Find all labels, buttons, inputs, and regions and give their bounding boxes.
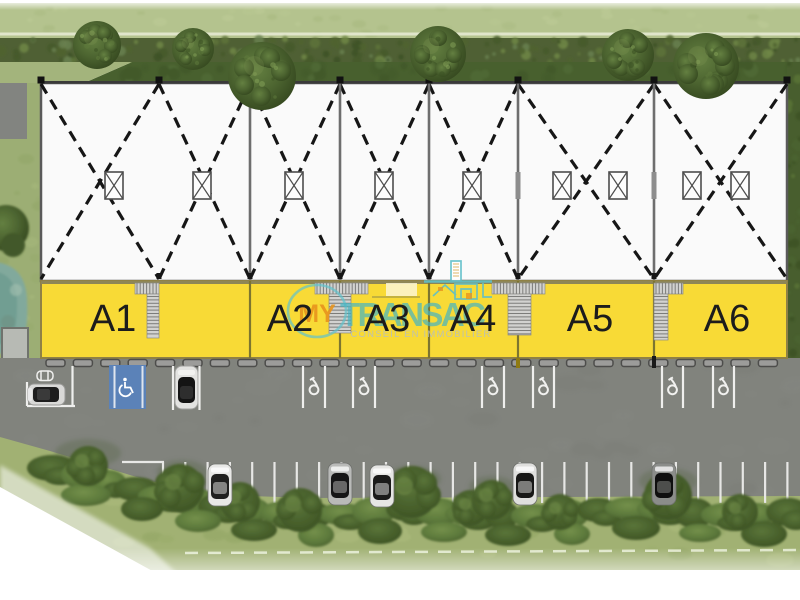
svg-text:A5: A5 [567, 298, 613, 340]
svg-text:A6: A6 [704, 298, 750, 340]
svg-text:A4: A4 [450, 298, 496, 340]
svg-text:A3: A3 [364, 298, 410, 340]
svg-text:A2: A2 [267, 298, 313, 340]
svg-text:A1: A1 [90, 298, 136, 340]
